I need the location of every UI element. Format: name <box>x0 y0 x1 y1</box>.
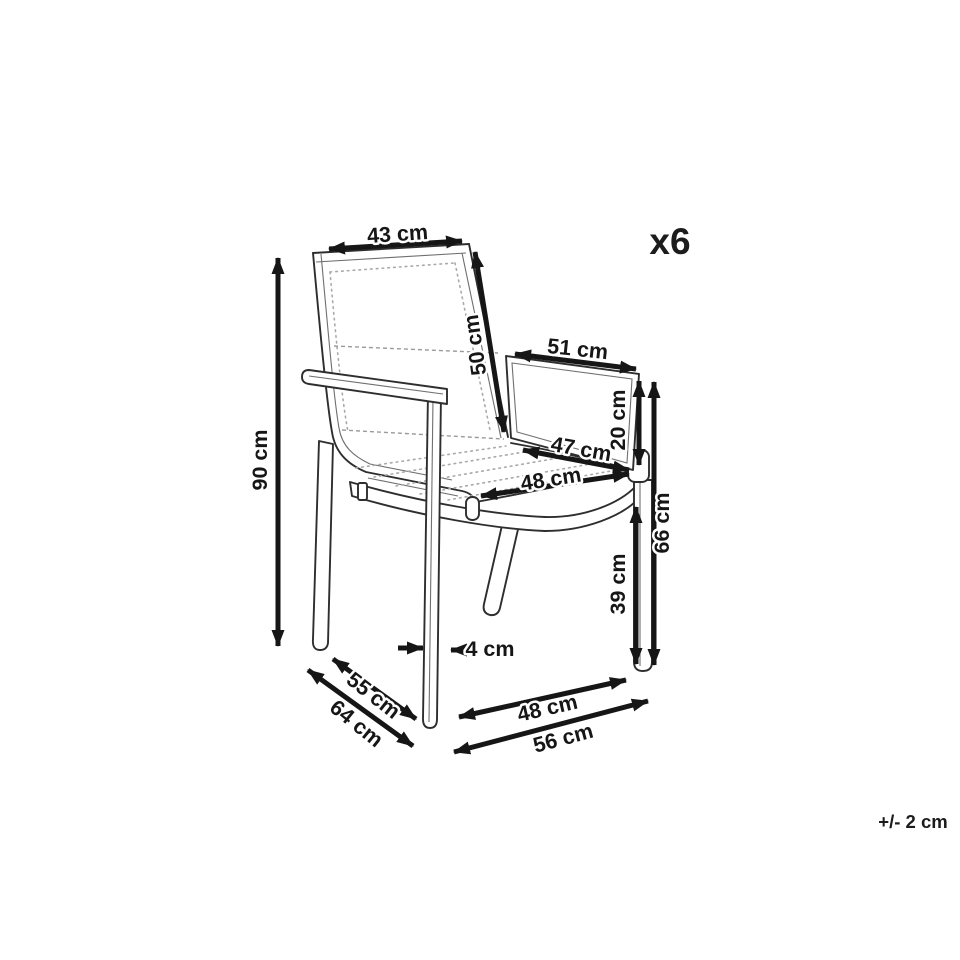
rear-left-leg <box>313 441 333 650</box>
seat-apron <box>350 482 638 531</box>
dim-label-total-height: 90 cm <box>248 430 272 491</box>
dim-label-seat-width: 48 cm <box>519 462 583 495</box>
product-dimension-diagram: 43 cm 50 cm 51 cm 20 cm 47 cm 48 cm 66 c… <box>0 0 960 960</box>
left-armrest <box>302 370 447 404</box>
quantity-label: x6 <box>649 221 690 262</box>
dim-label-frame-thickness: 4 cm <box>465 637 514 661</box>
dim-label-back-width: 43 cm <box>366 220 428 248</box>
seat-front-left-bracket <box>466 497 479 520</box>
dim-label-seat-height: 39 cm <box>606 554 630 615</box>
diagram-svg: 43 cm 50 cm 51 cm 20 cm 47 cm 48 cm 66 c… <box>0 0 960 960</box>
dimension-labels: 43 cm 50 cm 51 cm 20 cm 47 cm 48 cm 66 c… <box>248 220 674 758</box>
rear-right-leg <box>484 521 519 615</box>
tolerance-note: +/- 2 cm <box>878 811 947 832</box>
dim-label-armrest-height: 66 cm <box>650 493 674 554</box>
apron-bracket <box>358 483 367 500</box>
